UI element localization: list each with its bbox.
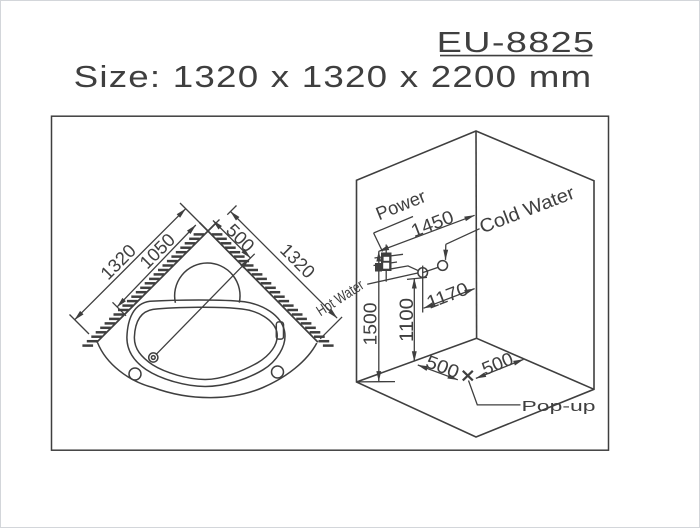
svg-text:1320: 1320 <box>276 239 319 282</box>
svg-text:1500: 1500 <box>359 303 380 346</box>
svg-text:1170: 1170 <box>423 278 471 313</box>
svg-text:1450: 1450 <box>408 206 457 241</box>
svg-text:1100: 1100 <box>397 298 418 342</box>
svg-text:500: 500 <box>423 351 462 383</box>
svg-text:Size: 1320 x 1320 x 2200 mm: Size: 1320 x 1320 x 2200 mm <box>74 60 593 94</box>
svg-text:Cold Water: Cold Water <box>477 182 579 238</box>
svg-text:Pop-up: Pop-up <box>522 398 596 415</box>
svg-text:EU-8825: EU-8825 <box>437 27 596 58</box>
